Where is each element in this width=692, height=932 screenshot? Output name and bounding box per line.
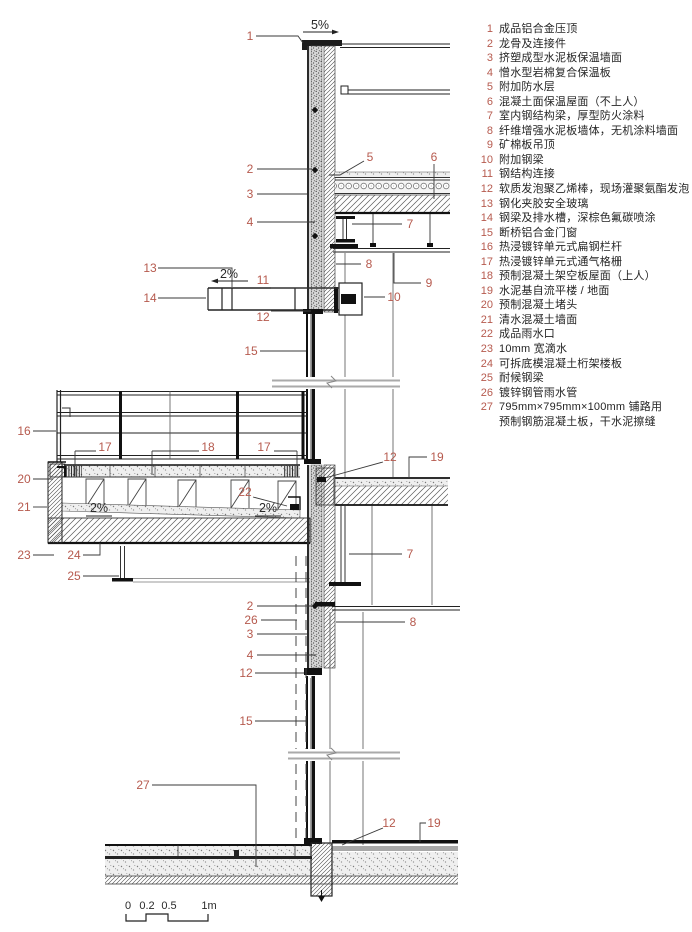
scale-tick-05: 0.5	[161, 900, 176, 912]
floor-slab	[335, 486, 448, 505]
callout-10: 10	[387, 290, 401, 304]
legend-item: 17热浸镀锌单元式通气格栅	[477, 255, 689, 270]
window-sill	[304, 459, 321, 464]
callout-19-bottom: 19	[427, 816, 441, 830]
callout-5: 5	[367, 150, 374, 164]
callout-17-left: 17	[98, 440, 112, 454]
cement-board-face	[307, 46, 309, 312]
break-lines	[272, 376, 400, 761]
callout-27: 27	[136, 778, 150, 792]
subgrade	[105, 876, 458, 884]
callout-3: 3	[247, 187, 254, 201]
callout-14: 14	[143, 291, 157, 305]
callout-3-lower: 3	[247, 627, 254, 641]
roof-screed	[335, 172, 450, 177]
legend-item: 6混凝土面保温屋面（不上人）	[477, 95, 689, 110]
legend-item: 3挤塑成型水泥板保温墙面	[477, 51, 689, 66]
fiber-cement-wall	[324, 46, 335, 312]
legend-item: 7室内钢结构梁，厚型防火涂料	[477, 109, 689, 124]
window-head-lower	[304, 668, 322, 675]
window-head	[303, 309, 323, 314]
precast-joint-block	[316, 468, 334, 505]
slope-label-terrace-right: 2%	[259, 501, 277, 515]
roof-slab	[335, 195, 450, 213]
rockwool-insulation	[311, 46, 322, 312]
legend: 1成品铝合金压顶 2龙骨及连接件 3挤塑成型水泥板保温墙面 4憎水型岩棉复合保温…	[477, 22, 689, 429]
legend-item: 19水泥基自流平楼 / 地面	[477, 284, 689, 299]
callout-1: 1	[247, 29, 254, 43]
legend-item: 18预制混凝土架空板屋面（上人）	[477, 269, 689, 284]
callout-22: 22	[238, 485, 252, 499]
callout-15-lower: 15	[239, 714, 253, 728]
callout-9: 9	[426, 276, 433, 290]
legend-item: 27795mm×795mm×100mm 铺路用	[477, 400, 689, 415]
callout-2: 2	[247, 162, 254, 176]
terrace-slab	[48, 518, 310, 543]
callout-12-mid: 12	[383, 450, 397, 464]
legend-item: 11钢结构连接	[477, 167, 689, 182]
roof-flashing	[340, 44, 450, 48]
roof-upper	[330, 44, 450, 477]
callout-25: 25	[67, 569, 81, 583]
callout-26: 26	[244, 613, 258, 627]
weathering-steel-beam	[121, 546, 125, 578]
legend-item: 1成品铝合金压顶	[477, 22, 689, 37]
legend-item-continuation: 预制钢筋混凝土板，干水泥擦缝	[477, 415, 689, 430]
callout-6: 6	[431, 150, 438, 164]
aluminum-coping	[302, 40, 342, 46]
legend-item: 5附加防水层	[477, 80, 689, 95]
callouts: 1 2 3 4 5 6 7 8 9 10 11 12 13 14 15 16 1…	[17, 29, 444, 830]
callout-20: 20	[17, 472, 31, 486]
callout-12-bottom: 12	[382, 816, 396, 830]
scale-bar: 0 0.2 0.5 1m	[125, 900, 217, 921]
steel-beam-top-flange	[336, 216, 355, 219]
legend-item: 10附加钢梁	[477, 153, 689, 168]
legend-item: 25耐候钢梁	[477, 371, 689, 386]
legend-item: 4憎水型岩棉复合保温板	[477, 66, 689, 81]
callout-8-lower: 8	[410, 615, 417, 629]
callout-11: 11	[257, 273, 270, 287]
callout-18: 18	[201, 440, 215, 454]
foundation-plinth	[311, 843, 332, 896]
callout-16: 16	[17, 424, 31, 438]
callout-17-right: 17	[257, 440, 271, 454]
ceiling-hangers	[373, 214, 430, 243]
floor-terrace-level	[335, 478, 450, 505]
scale-tick-02: 0.2	[139, 900, 154, 912]
legend-item: 8纤维增强水泥板墙体，无机涂料墙面	[477, 124, 689, 139]
legend-item: 14钢梁及排水槽，深棕色氟碳喷涂	[477, 211, 689, 226]
suspended-ceiling-lower	[332, 607, 460, 611]
legend-item: 15断桥铝合金门窗	[477, 226, 689, 241]
slope-label-canopy: 2%	[220, 267, 238, 281]
callout-15: 15	[244, 344, 258, 358]
interior-lower	[315, 506, 460, 610]
roof-insulation	[335, 181, 450, 193]
callout-21: 21	[17, 500, 31, 514]
legend-item: 9矿棉板吊顶	[477, 138, 689, 153]
ground	[105, 840, 458, 902]
precast-plug	[50, 464, 65, 477]
railing-stile	[57, 390, 61, 462]
slope-label-parapet: 5%	[311, 18, 329, 32]
scale-tick-0: 0	[125, 900, 131, 912]
legend-item: 20预制混凝土堵头	[477, 298, 689, 313]
scale-tick-1m: 1m	[201, 900, 216, 912]
callout-7-lower: 7	[407, 547, 414, 561]
waterproofing-layer	[335, 178, 450, 181]
vent-grille-left	[66, 466, 82, 477]
steel-beam-lower	[341, 506, 345, 582]
callout-8: 8	[366, 257, 373, 271]
callout-4: 4	[247, 215, 254, 229]
detail-drawing: 1 2 3 4 5 6 7 8 9 10 11 12 13 14 15 16 1…	[0, 0, 475, 932]
legend-item: 2龙骨及连接件	[477, 37, 689, 52]
callout-12: 12	[256, 310, 270, 324]
exterior-paving	[105, 845, 312, 856]
legend-item: 12软质发泡聚乙烯棒，现场灌聚氨酯发泡	[477, 182, 689, 197]
callout-12-lower: 12	[239, 666, 253, 680]
slope-label-terrace-left: 2%	[90, 501, 108, 515]
legend-item: 24可拆底模混凝土桁架楼板	[477, 357, 689, 372]
callout-13: 13	[143, 261, 157, 275]
paver-deck	[64, 465, 300, 477]
callout-23: 23	[17, 548, 31, 562]
suspended-ceiling	[333, 249, 450, 253]
construction-detail-page: 1 2 3 4 5 6 7 8 9 10 11 12 13 14 15 16 1…	[0, 0, 692, 932]
callout-7: 7	[407, 217, 414, 231]
rainwater-downpipe-dashed	[296, 556, 306, 843]
legend-item: 2310mm 宽滴水	[477, 342, 689, 357]
legend-item: 22成品雨水口	[477, 327, 689, 342]
terrace	[48, 390, 310, 582]
callout-2-lower: 2	[247, 599, 254, 613]
callout-4-lower: 4	[247, 648, 254, 662]
callout-19-mid: 19	[430, 450, 444, 464]
legend-item: 26镀锌钢管雨水管	[477, 386, 689, 401]
legend-item: 21清水混凝土墙面	[477, 313, 689, 328]
gutter-end-cap	[208, 288, 295, 310]
legend-item: 16热浸镀锌单元式扁钢栏杆	[477, 240, 689, 255]
leader-lines	[33, 36, 434, 867]
callout-24: 24	[67, 548, 81, 562]
legend-item: 13钢化夹胶安全玻璃	[477, 197, 689, 212]
